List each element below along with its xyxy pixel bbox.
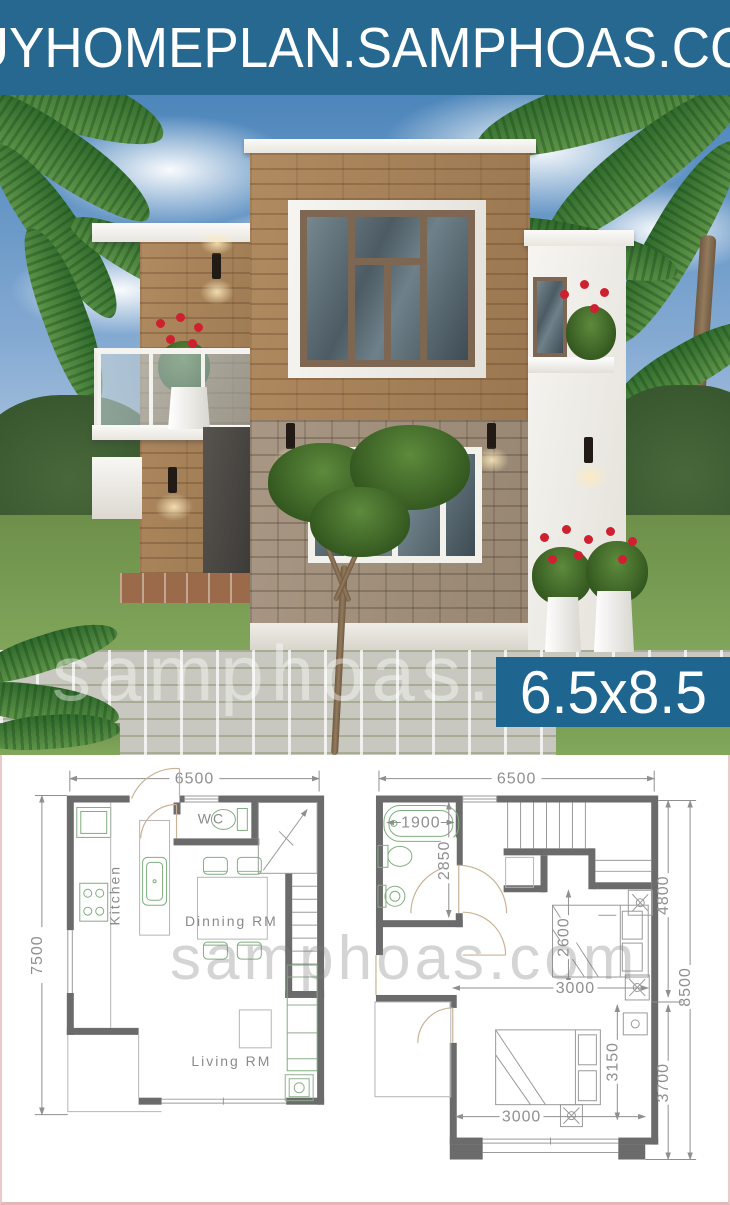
balcony-planter [168, 387, 210, 429]
tree-foliage [310, 487, 410, 557]
dim-upper-width: 6500 [497, 771, 536, 788]
lamp-glow [475, 447, 509, 473]
lamp-glow [572, 463, 608, 491]
lamp-glow [155, 493, 193, 521]
dim-ground-width: 6500 [175, 771, 214, 788]
white-garden-wall [92, 457, 142, 519]
garden-roses [532, 525, 652, 605]
right-roof-slab [524, 230, 634, 246]
header-banner: BUYHOMEPLAN.SAMPHOAS.COM [0, 0, 730, 95]
upper-floor-stairs [506, 803, 652, 888]
dim-bed2-depth: 3150 [604, 1042, 621, 1081]
dim-bath-depth: 2850 [436, 841, 453, 880]
tower-roof-slab [244, 139, 536, 153]
plot-size-badge: 6.5x8.5 [496, 657, 730, 727]
wall-lamp [168, 467, 177, 493]
dim-tub: 1900 [401, 814, 440, 831]
plot-size-label: 6.5x8.5 [519, 658, 706, 727]
plans-watermark: samphoas.com [170, 923, 638, 994]
floor-plans-section: samphoas.com 6500 7500 [0, 755, 730, 1205]
dim-right-total: 8500 [677, 967, 694, 1006]
wall-lamp [487, 423, 496, 449]
entry-door [203, 427, 257, 577]
left-roof-slab [92, 223, 260, 242]
dim-ground-depth: 7500 [29, 935, 46, 974]
site-title: BUYHOMEPLAN.SAMPHOAS.COM [0, 15, 730, 81]
right-balcony-roses [556, 280, 626, 360]
main-upper-window [300, 210, 475, 367]
lamp-glow [200, 279, 234, 305]
upper-terrace [375, 1002, 451, 1097]
wall-lamp [212, 253, 221, 279]
bedroom2-bed [496, 1030, 601, 1105]
page: BUYHOMEPLAN.SAMPHOAS.COM [0, 0, 730, 1205]
label-kitchen: Kitchen [107, 865, 123, 926]
wall-lamp [286, 423, 295, 449]
label-living: Living RM [191, 1053, 271, 1069]
dim-bed2-width: 3000 [502, 1109, 541, 1126]
dim-right-lower: 3700 [655, 1063, 672, 1102]
lamp-glow [200, 231, 234, 255]
wall-lamp [584, 437, 593, 463]
house-render-photo: samphoas.com [0, 95, 730, 755]
dim-right-upper: 4800 [655, 876, 672, 915]
